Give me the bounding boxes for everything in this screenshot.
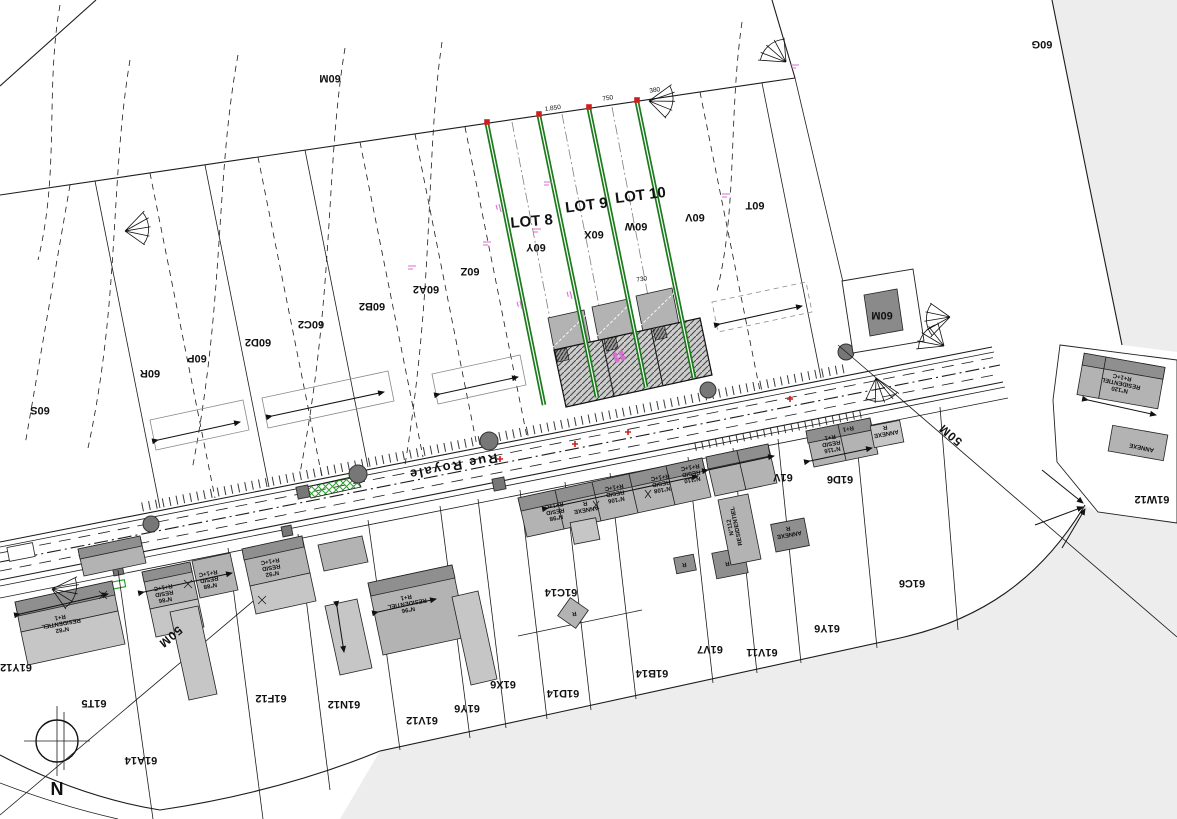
roadside-cabinet (7, 543, 35, 562)
dimension-rects (150, 282, 812, 450)
parcel-label: 60M (871, 309, 892, 321)
parcel-label: 61C6 (899, 577, 925, 589)
survey-symbols (51, 32, 954, 610)
north-arrow: N (24, 706, 90, 799)
parcel-label: 61V7 (697, 643, 723, 655)
parcel-label: 60T (745, 199, 764, 211)
parcel-label: 61F12 (255, 692, 286, 704)
street-axis (0, 365, 1000, 562)
parcel-label: 60D2 (245, 336, 271, 348)
lot8-label: LOT 8 (510, 211, 554, 232)
parcel-label: 61X6 (490, 678, 516, 690)
parcel-label: 61V (773, 471, 793, 483)
parcel-label: 61Y6 (814, 622, 840, 634)
tree (143, 516, 159, 532)
parcel-label: 61D14 (546, 687, 579, 699)
utility-box (492, 477, 506, 491)
utility-box (296, 485, 310, 499)
parcel-label: 61D6 (827, 473, 853, 485)
parcel-label: 60G (1032, 38, 1053, 50)
parcel-label: 60P (187, 352, 207, 364)
street-rue-royale (0, 344, 1008, 598)
parcel-label: 60B2 (359, 300, 385, 312)
parcel-label: 60M (319, 72, 340, 84)
parcel-strip-lines (88, 22, 821, 508)
parcel-label: 60R (140, 367, 160, 379)
dimension-label: 750 (602, 94, 614, 102)
parcel-label: 60S (30, 404, 50, 416)
lot9-label: LOT 9 (564, 195, 608, 217)
parcel-label: 61Y6 (454, 702, 480, 714)
parcel-label: 60W (624, 220, 647, 232)
parcel-label: 61W12 (1135, 493, 1170, 505)
dimension-label: 730 (636, 275, 648, 283)
tree (700, 382, 716, 398)
parcel-label: 60Y (526, 241, 546, 253)
parcel-label: 61A14 (124, 754, 157, 766)
parcel-label: 61V12 (406, 714, 438, 726)
field-boundaries (0, 0, 843, 445)
north-label: N (51, 779, 64, 799)
site-plan: N Rue Royale LOT 8 LOT 9 LOT 10 50M 50M … (0, 0, 1177, 819)
road-areas (0, 0, 1177, 819)
parcel-label: 61T5 (81, 697, 106, 709)
parcel-label: 60A2 (413, 283, 439, 295)
tree (480, 432, 498, 450)
parcel-label: 61B14 (635, 667, 668, 679)
utility-box (281, 525, 293, 537)
parcel-label: 60C2 (298, 318, 324, 330)
parcel-label: 60V (685, 211, 705, 223)
parcel-label: 60X (584, 228, 604, 240)
parcel-label: 61C14 (544, 586, 577, 598)
distance-50m-right: 50M (936, 421, 965, 449)
parcel-label: 60Z (460, 265, 479, 277)
dimension-label: 1.850 (544, 104, 561, 113)
parcel-label: 61N12 (328, 698, 360, 710)
parcel-label: 61Y12 (0, 661, 32, 673)
parcel-label: 61V11 (746, 646, 777, 658)
tree (349, 465, 367, 483)
